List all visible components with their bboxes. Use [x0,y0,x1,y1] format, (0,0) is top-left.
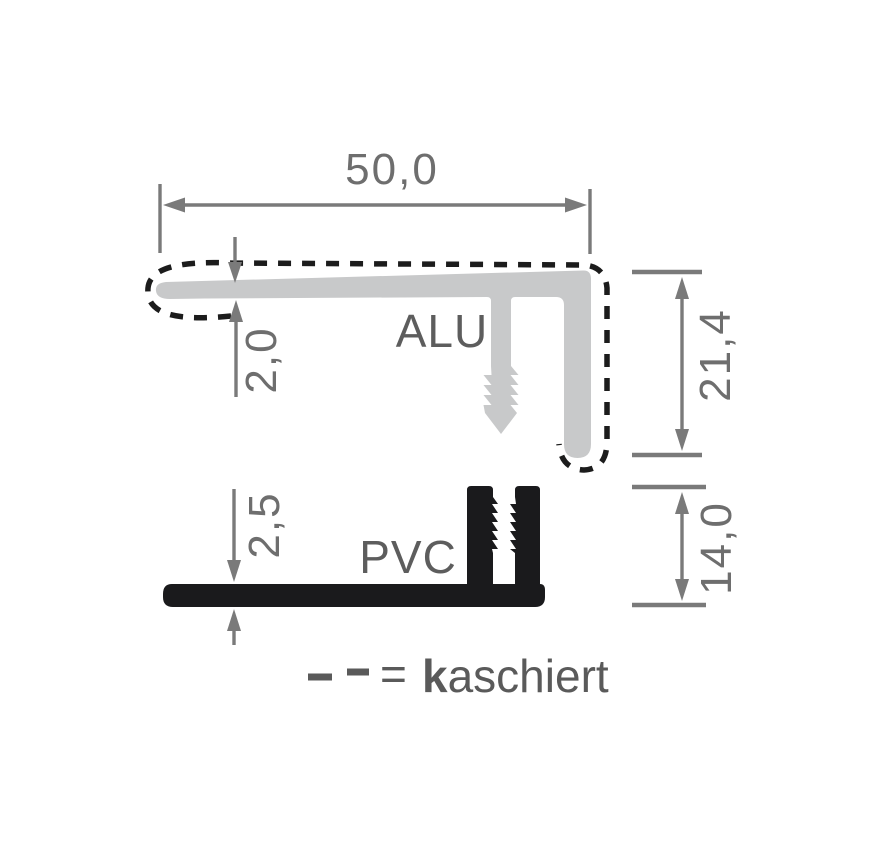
pvc-material-label: PVC [359,531,457,583]
legend: = kaschiert [308,648,609,702]
legend-term-bold-k: k [422,650,448,702]
technical-drawing-canvas: 50,0 2,0 21,4 2,5 14,0 ALU PVC [0,0,882,843]
dimension-arrow-down-icon [228,262,242,283]
dimension-value-pvc-thickness: 2,5 [240,491,289,558]
dimension-value-pvc-height: 14,0 [692,501,741,595]
dimension-arrow-down-icon [675,429,689,451]
dimension-arrow-right-icon [565,198,587,213]
legend-term-rest: aschiert [448,650,609,702]
dimension-value-alu-thickness: 2,0 [237,326,286,393]
dimension-value-alu-height: 21,4 [691,308,740,402]
dimension-alu-height: 21,4 [632,272,740,455]
alu-profile-shape [156,270,591,458]
dimension-pvc-thickness: 2,5 [227,489,289,645]
alu-material-label: ALU [396,305,488,357]
dimension-arrow-down-icon [675,579,689,601]
dimension-arrow-up-icon [675,277,689,299]
legend-equals-sign: = [380,648,407,700]
dimension-arrow-left-icon [163,198,185,213]
dimension-top-width: 50,0 [160,145,590,254]
pvc-profile-shape [163,486,545,607]
profile-diagram: 50,0 2,0 21,4 2,5 14,0 ALU PVC [0,0,882,843]
dimension-value-top-width: 50,0 [345,145,439,194]
pvc-right-post [510,486,540,590]
pvc-left-post [467,486,498,590]
dimension-pvc-height: 14,0 [632,487,741,605]
dimension-arrow-up-icon [675,492,689,514]
legend-term-kaschiert: kaschiert [422,650,609,702]
dimension-arrow-down-icon [227,560,241,582]
